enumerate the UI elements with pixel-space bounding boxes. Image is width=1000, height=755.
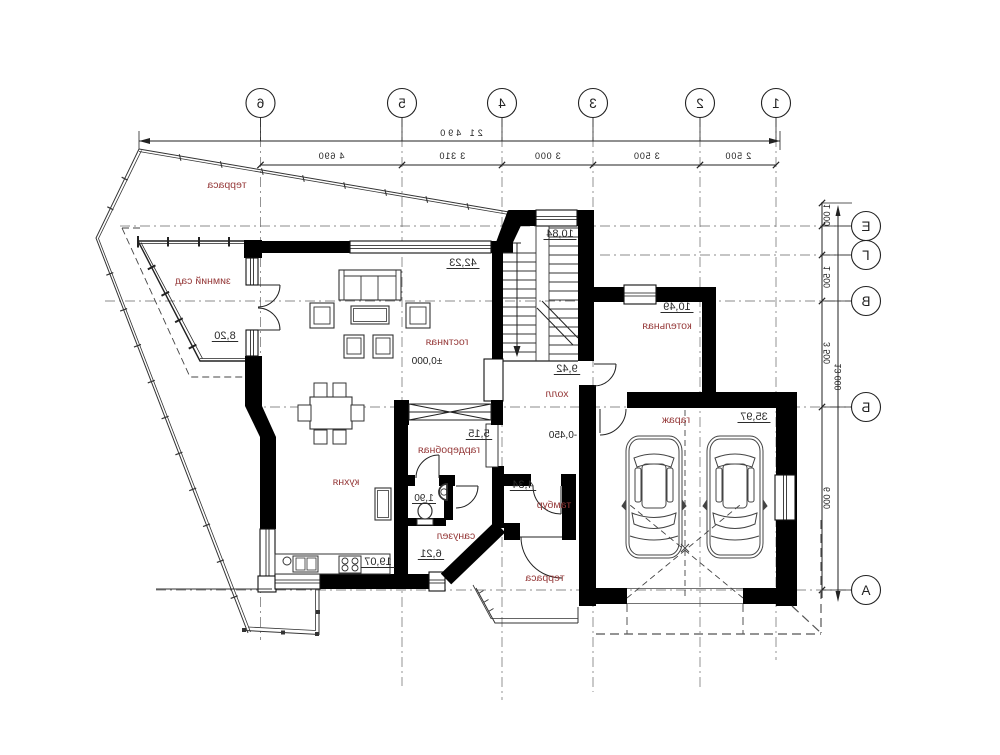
svg-text:1: 1 (772, 96, 780, 111)
svg-text:6: 6 (257, 96, 265, 111)
svg-text:тамбур: тамбур (537, 499, 572, 511)
svg-text:терраса: терраса (207, 179, 246, 191)
svg-text:гараж: гараж (662, 414, 690, 426)
svg-text:±0,000: ±0,000 (411, 356, 442, 367)
svg-text:1,90: 1,90 (414, 493, 434, 504)
svg-text:2: 2 (696, 96, 704, 111)
svg-text:10,49: 10,49 (663, 301, 691, 313)
svg-text:5: 5 (398, 96, 406, 111)
svg-text:13 000: 13 000 (833, 364, 843, 391)
svg-text:В: В (861, 294, 870, 309)
svg-text:3 500: 3 500 (822, 342, 832, 364)
svg-text:холл: холл (546, 388, 569, 400)
svg-text:1 500: 1 500 (822, 266, 832, 288)
svg-text:21 490: 21 490 (437, 128, 483, 138)
svg-text:4 690: 4 690 (318, 151, 345, 161)
svg-text:Е: Е (861, 219, 870, 234)
svg-text:3: 3 (589, 96, 597, 111)
svg-text:котельная: котельная (642, 320, 691, 332)
svg-text:9,42: 9,42 (556, 363, 577, 375)
svg-text:терраса: терраса (525, 572, 564, 584)
svg-text:35,97: 35,97 (740, 411, 768, 423)
svg-text:5,15: 5,15 (468, 428, 489, 440)
svg-text:8,20: 8,20 (214, 330, 235, 342)
svg-text:кухня: кухня (333, 476, 360, 488)
svg-text:гардеробная: гардеробная (418, 444, 480, 456)
svg-text:4,34: 4,34 (512, 479, 533, 491)
svg-text:4: 4 (498, 96, 506, 111)
svg-text:Б: Б (861, 400, 870, 415)
svg-text:3 500: 3 500 (633, 151, 660, 161)
svg-text:санузел: санузел (437, 530, 475, 542)
svg-text:1 000: 1 000 (822, 204, 832, 226)
svg-text:3 000: 3 000 (534, 151, 561, 161)
svg-text:гостиная: гостиная (426, 336, 469, 348)
svg-text:42,23: 42,23 (449, 257, 477, 269)
svg-text:Г: Г (862, 248, 870, 263)
svg-text:10,84: 10,84 (546, 228, 574, 240)
svg-text:6,21: 6,21 (420, 548, 441, 560)
svg-text:6 000: 6 000 (822, 487, 832, 509)
svg-text:-0,450: -0,450 (548, 430, 577, 441)
svg-text:2 500: 2 500 (725, 151, 752, 161)
svg-text:А: А (861, 583, 870, 598)
svg-text:3 310: 3 310 (439, 151, 466, 161)
svg-text:19,07: 19,07 (364, 556, 392, 568)
svg-text:зимний сад: зимний сад (175, 275, 231, 287)
